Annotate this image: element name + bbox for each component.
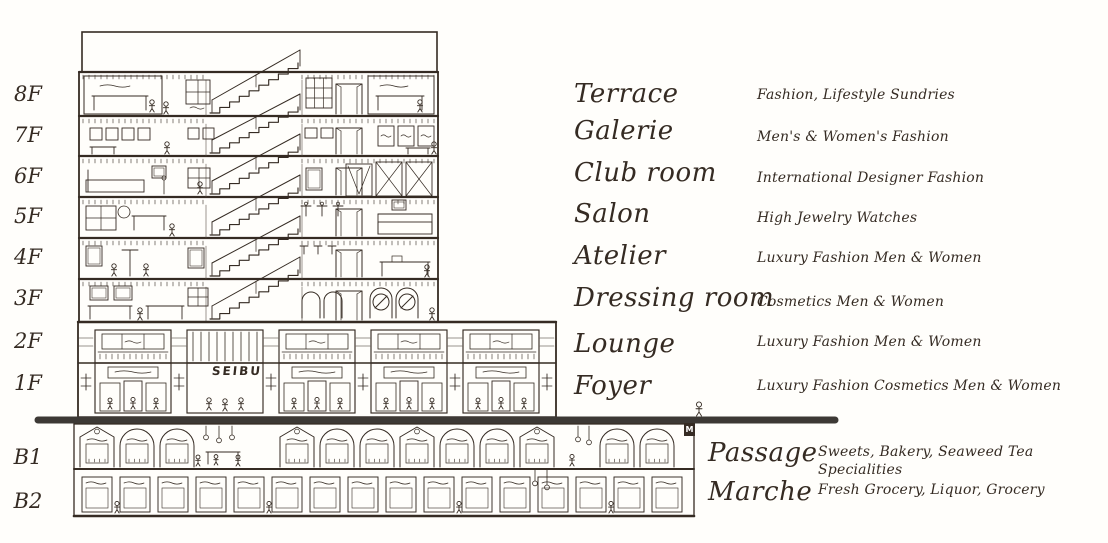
floor-directory-poster: 8F 7F 6F 5F 4F 3F 2F 1F B1 B2 Terrace Ga… <box>0 0 1108 543</box>
floor-desc-2f: Luxury Fashion Men & Women <box>757 333 982 351</box>
floor-name-7f: Galerie <box>574 116 674 146</box>
floor-name-b1: Passage <box>708 438 818 468</box>
floor-label-1f: 1F <box>2 371 54 395</box>
floor-name-4f: Atelier <box>574 241 666 271</box>
floor-desc-8f: Fashion, Lifestyle Sundries <box>757 86 955 104</box>
floor-desc-b1: Sweets, Bakery, Seaweed Tea Specialities <box>818 443 1108 479</box>
floor-label-7f: 7F <box>2 123 54 147</box>
floor-desc-3f: Cosmetics Men & Women <box>757 293 944 311</box>
podium-2f-1f <box>78 322 556 417</box>
roof-parapet <box>82 32 437 72</box>
floor-label-5f: 5F <box>2 204 54 228</box>
pedestrian-figure <box>696 402 702 416</box>
floor-desc-6f: International Designer Fashion <box>757 169 984 187</box>
floor-desc-4f: Luxury Fashion Men & Women <box>757 249 982 267</box>
floor-label-b2: B2 <box>2 489 54 513</box>
floor-name-b2: Marche <box>708 477 812 507</box>
floor-desc-b2: Fresh Grocery, Liquor, Grocery <box>818 481 1045 499</box>
floor-label-2f: 2F <box>2 329 54 353</box>
floor-desc-1f: Luxury Fashion Cosmetics Men & Women <box>757 377 1061 395</box>
floor-name-1f: Foyer <box>574 371 651 401</box>
floor-name-8f: Terrace <box>574 79 679 109</box>
floor-label-4f: 4F <box>2 245 54 269</box>
elevator-mark: M <box>684 423 695 436</box>
floor-name-6f: Club room <box>574 158 717 188</box>
floor-label-6f: 6F <box>2 164 54 188</box>
tower-floors <box>79 50 438 322</box>
basement-b2 <box>74 469 694 516</box>
basement-b1 <box>74 424 694 469</box>
floor-name-2f: Lounge <box>574 329 675 359</box>
floor-name-5f: Salon <box>574 199 651 229</box>
floor-label-3f: 3F <box>2 286 54 310</box>
storefront-sign-seibu: SEIBU <box>197 364 276 378</box>
floor-label-b1: B1 <box>2 445 54 469</box>
floor-name-3f: Dressing room <box>574 283 774 313</box>
floor-label-8f: 8F <box>2 82 54 106</box>
floor-desc-5f: High Jewelry Watches <box>757 209 917 227</box>
floor-desc-7f: Men's & Women's Fashion <box>757 128 949 146</box>
